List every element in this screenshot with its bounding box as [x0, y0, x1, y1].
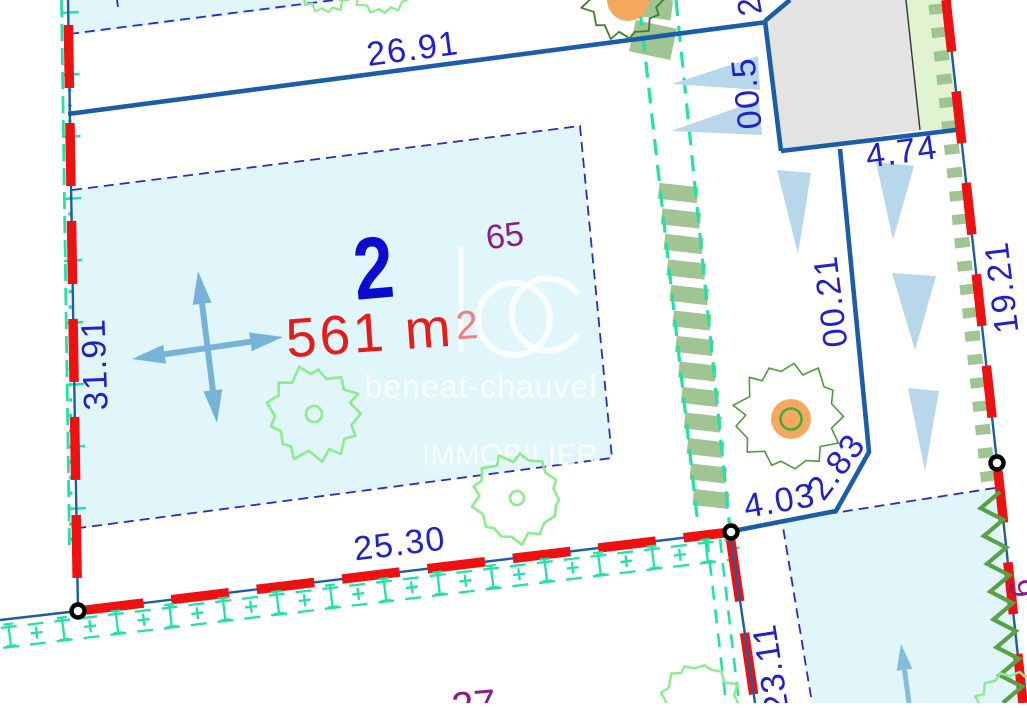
- svg-text:31.91: 31.91: [74, 317, 115, 411]
- svg-text:IMMOBILIER: IMMOBILIER: [422, 440, 598, 472]
- svg-text:beneat-chauvel: beneat-chauvel: [365, 368, 598, 404]
- svg-text:561 m: 561 m: [284, 296, 456, 370]
- svg-text:65: 65: [484, 215, 526, 257]
- svg-text:00.5: 00.5: [724, 55, 769, 131]
- svg-text:2: 2: [454, 303, 479, 348]
- svg-text:27: 27: [450, 682, 498, 703]
